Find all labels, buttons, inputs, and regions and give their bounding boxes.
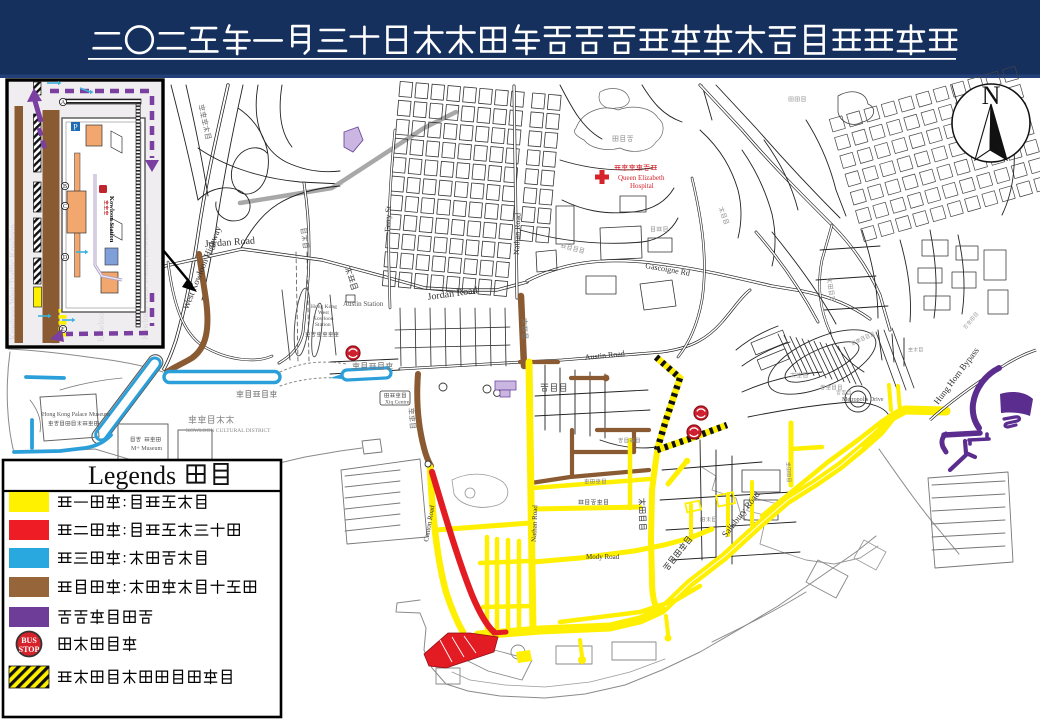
- svg-text:B: B: [63, 184, 67, 190]
- svg-text:Metropolis Drive: Metropolis Drive: [842, 397, 884, 403]
- svg-text:Legends: Legends: [88, 461, 176, 490]
- svg-text:C: C: [63, 204, 67, 210]
- svg-text:P: P: [73, 123, 78, 132]
- svg-text:Station: Station: [315, 322, 331, 328]
- svg-text:KOWLOON CULTURAL DISTRICT: KOWLOON CULTURAL DISTRICT: [186, 428, 271, 434]
- svg-text:D: D: [63, 255, 68, 261]
- svg-text:Hospital: Hospital: [630, 182, 654, 190]
- svg-text:BUS: BUS: [21, 636, 37, 645]
- svg-text:Austin Station: Austin Station: [343, 300, 384, 308]
- svg-text:Queen Elizabeth: Queen Elizabeth: [618, 174, 665, 182]
- svg-text:Kowloon Station: Kowloon Station: [108, 196, 115, 243]
- svg-text:STOP: STOP: [19, 645, 40, 654]
- svg-text:Nathan Road: Nathan Road: [512, 213, 522, 255]
- svg-text:Mody Road: Mody Road: [586, 553, 620, 561]
- svg-text:Nathan Road: Nathan Road: [530, 505, 539, 542]
- svg-text:A: A: [61, 100, 66, 106]
- svg-text:Xiq Centre: Xiq Centre: [385, 400, 410, 406]
- svg-text:Hong Kong Palace Museum: Hong Kong Palace Museum: [42, 412, 110, 418]
- svg-text:Ferry St: Ferry St: [383, 205, 393, 232]
- svg-text:M+ Museum: M+ Museum: [131, 446, 163, 452]
